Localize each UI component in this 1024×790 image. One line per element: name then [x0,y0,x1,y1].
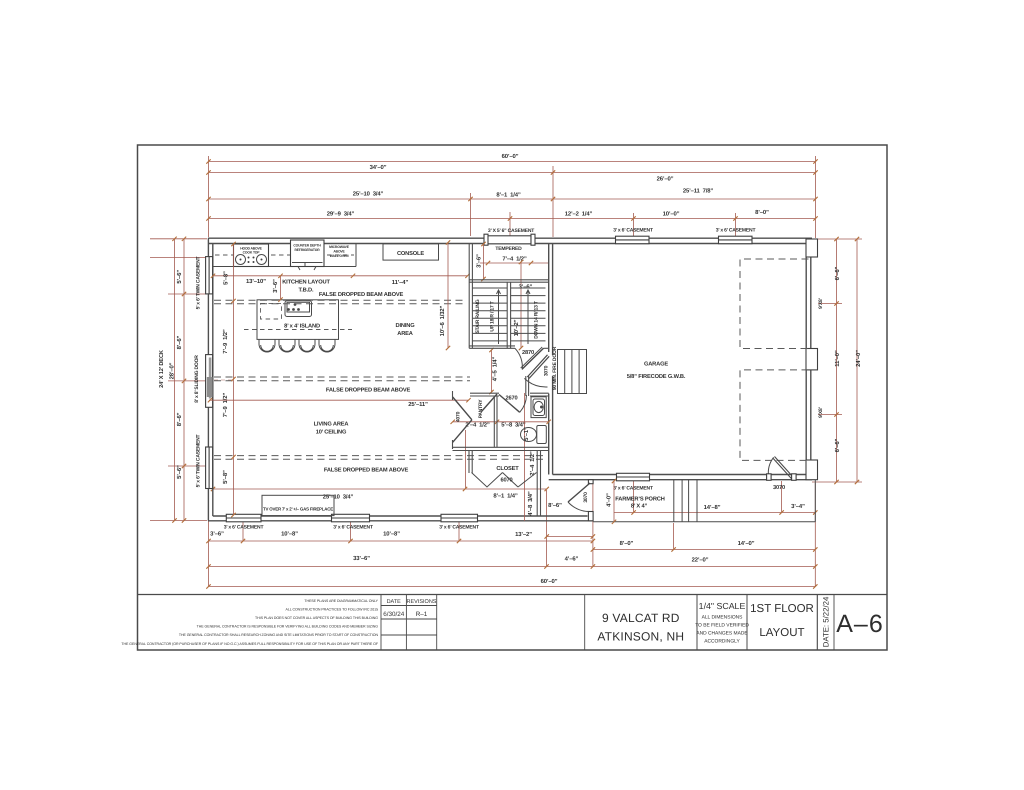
svg-text:24’–0”: 24’–0” [855,350,862,367]
svg-text:3’–4”: 3’–4” [791,503,805,510]
svg-text:REFRIGERATOR: REFRIGERATOR [294,248,320,252]
svg-text:CONSOLE: CONSOLE [397,251,424,257]
svg-text:TO BE FIELD VERIFIED: TO BE FIELD VERIFIED [695,623,749,629]
svg-text:3’–6”: 3’–6” [272,279,279,293]
svg-text:14’–0”: 14’–0” [738,540,755,547]
svg-text:25’–11 7/8”: 25’–11 7/8” [683,188,714,195]
svg-text:10’–6 1/32”: 10’–6 1/32” [439,305,446,336]
svg-text:4070: 4070 [456,411,462,422]
svg-text:8’ x 4’ ISLAND: 8’ x 4’ ISLAND [284,324,320,330]
svg-text:THESE PLANS ARE DIAGRAMMATICAL: THESE PLANS ARE DIAGRAMMATICAL ONLY [304,599,378,603]
svg-text:25’–11”: 25’–11” [408,401,428,408]
svg-text:R–1: R–1 [416,611,428,618]
svg-text:4’–0”: 4’–0” [606,493,613,507]
svg-text:GARAGE: GARAGE [644,362,668,368]
svg-text:6’–6”: 6’–6” [834,266,841,280]
svg-text:8’–1 1/4”: 8’–1 1/4” [496,192,521,199]
svg-text:3’ x 6’ CASEMENT: 3’ x 6’ CASEMENT [613,486,653,492]
svg-text:25’–10 3/4”: 25’–10 3/4” [353,191,384,198]
svg-text:3’ X 5’ 6” CASEMENT: 3’ X 5’ 6” CASEMENT [488,228,534,234]
svg-text:34’–0”: 34’–0” [370,164,387,171]
svg-text:5’–6”: 5’–6” [176,465,183,479]
svg-text:4’–6”: 4’–6” [565,556,579,563]
svg-text:ALL DIMENSIONS: ALL DIMENSIONS [702,615,744,621]
svg-text:9’X8’: 9’X8’ [818,406,824,417]
svg-text:5’ x 6’ TWIN CASEMENT: 5’ x 6’ TWIN CASEMENT [196,434,202,487]
svg-text:10’–8”: 10’–8” [281,531,298,538]
svg-text:11’–0”: 11’–0” [834,350,841,367]
svg-text:DOWN 14 R/ 13 T: DOWN 14 R/ 13 T [534,301,540,339]
svg-text:4’–5 1/4”: 4’–5 1/4” [492,357,499,382]
svg-text:DATE: 5/22/24: DATE: 5/22/24 [822,596,831,647]
svg-text:6070: 6070 [500,478,512,484]
svg-text:3’ x 6’ CASEMENT: 3’ x 6’ CASEMENT [716,228,756,234]
svg-text:8’–0”: 8’–0” [620,540,634,547]
svg-text:THE GENERAL CONTRACTOR SHALL R: THE GENERAL CONTRACTOR SHALL RESEARCH ZO… [179,633,379,637]
svg-text:CLOSET: CLOSET [496,466,519,472]
svg-text:7’–4 1/2”: 7’–4 1/2” [502,256,527,263]
svg-text:3’–6”: 3’–6” [476,254,483,268]
svg-text:25’–10 3/4”: 25’–10 3/4” [323,494,354,501]
svg-text:AREA: AREA [397,331,413,337]
svg-text:2’–4 1/2”: 2’–4 1/2” [529,451,536,476]
svg-text:10’–8”: 10’–8” [383,531,400,538]
svg-text:UP 18 R / 17 T: UP 18 R / 17 T [490,301,496,331]
svg-text:8’–0”: 8’–0” [755,209,769,216]
svg-text:FALSE DROPPED BEAM ABOVE: FALSE DROPPED BEAM ABOVE [319,292,404,298]
svg-text:13’–2”: 13’–2” [515,531,532,538]
svg-text:AND CHANGES MADE: AND CHANGES MADE [696,631,748,637]
svg-text:2870: 2870 [522,350,534,356]
svg-text:12’–2 1/4”: 12’–2 1/4” [565,211,593,218]
svg-text:8’ X 4”: 8’ X 4” [631,504,648,510]
svg-text:4’–8 3/4”: 4’–8 3/4” [527,491,534,516]
svg-text:6/30/24: 6/30/24 [383,611,405,618]
svg-text:3’ x 6’ CASEMENT: 3’ x 6’ CASEMENT [613,228,653,234]
svg-text:PANTRY: PANTRY [478,399,484,419]
svg-text:14’–8”: 14’–8” [704,504,721,511]
svg-text:5/8” FIRECODE G.W.B.: 5/8” FIRECODE G.W.B. [627,373,686,380]
svg-text:3’ x 6’ CASEMENT: 3’ x 6’ CASEMENT [333,525,373,531]
svg-text:13’–10”: 13’–10” [246,278,266,285]
svg-text:KITCHEN LAYOUT: KITCHEN LAYOUT [282,280,330,286]
svg-text:22’–0”: 22’–0” [692,557,709,564]
svg-text:33’–6”: 33’–6” [353,555,370,562]
svg-text:ABOVE: ABOVE [333,250,345,254]
svg-text:ALL CONSTRUCTION PRACTICES TO: ALL CONSTRUCTION PRACTICES TO FOLLOW IRC… [286,608,379,612]
svg-text:DINING: DINING [395,323,415,329]
svg-text:28’–0”: 28’–0” [169,362,176,379]
svg-text:10’–0”: 10’–0” [663,211,680,218]
svg-text:THIS PLAN DOES NOT COVER ALL A: THIS PLAN DOES NOT COVER ALL ASPECTS OF … [255,616,378,620]
svg-text:11’–4”: 11’–4” [392,279,409,286]
svg-text:REVISIONS: REVISIONS [407,599,437,605]
svg-text:ATKINSON, NH: ATKINSON, NH [597,630,684,644]
svg-text:5’–8 3/4”: 5’–8 3/4” [501,421,526,428]
svg-text:60’–0”: 60’–0” [502,153,519,160]
svg-text:3’–6”: 3’–6” [210,531,224,538]
svg-text:FALSE DROPPED BEAM ABOVE: FALSE DROPPED BEAM ABOVE [326,388,411,394]
svg-text:TEMPERED: TEMPERED [495,246,522,252]
svg-text:3’–6”: 3’–6” [519,284,533,291]
svg-text:60’–0”: 60’–0” [541,578,558,585]
svg-text:8’–6”: 8’–6” [176,412,183,426]
svg-text:3070: 3070 [773,485,785,491]
svg-text:7’–9 1/2”: 7’–9 1/2” [222,329,229,354]
svg-text:THE GENERAL CONTRACTOR (OR PUR: THE GENERAL CONTRACTOR (OR PURCHASER OF … [121,642,378,646]
svg-text:FALSE DROPPED BEAM ABOVE: FALSE DROPPED BEAM ABOVE [324,468,409,474]
svg-text:THE GENERAL CONTRACTOR IS RESP: THE GENERAL CONTRACTOR IS RESPONSIBLE FO… [197,625,379,629]
svg-text:3070: 3070 [544,365,550,376]
svg-text:8’ x 8’ SLIDING DOOR: 8’ x 8’ SLIDING DOOR [194,355,200,403]
svg-text:9’X8’: 9’X8’ [818,297,824,308]
svg-text:1/4" SCALE: 1/4" SCALE [699,601,746,611]
svg-text:26’–0”: 26’–0” [657,176,674,183]
svg-text:1ST FLOOR: 1ST FLOOR [750,603,814,615]
svg-text:WALL OVEN: WALL OVEN [330,254,349,258]
svg-text:2670: 2670 [505,396,517,402]
svg-text:8’–1 1/4”: 8’–1 1/4” [493,493,518,500]
svg-text:COUNTER DEPTH: COUNTER DEPTH [293,244,321,248]
svg-text:8’–6”: 8’–6” [548,502,562,509]
svg-text:3’ x 6’ CASEMENT: 3’ x 6’ CASEMENT [439,525,479,531]
svg-text:5’–6”: 5’–6” [176,270,183,284]
svg-text:6’–6”: 6’–6” [834,438,841,452]
svg-text:5’–8”: 5’–8” [222,470,229,484]
svg-text:TV OVER 7’ x 2’ +/– GAS FIREPL: TV OVER 7’ x 2’ +/– GAS FIREPLACE [263,507,333,512]
svg-text:ACCORDINGLY: ACCORDINGLY [704,639,740,645]
svg-text:8’–6”: 8’–6” [176,335,183,349]
svg-text:24’ X 12’ DECK: 24’ X 12’ DECK [159,349,165,388]
svg-text:7’–9 1/2”: 7’–9 1/2” [222,393,229,418]
svg-text:LIVING AREA: LIVING AREA [314,422,349,428]
svg-text:3070: 3070 [583,492,589,503]
svg-text:3’ x 6’ CASEMENT: 3’ x 6’ CASEMENT [224,525,264,531]
svg-text:A–6: A–6 [836,610,883,638]
svg-text:T.B.D.: T.B.D. [299,288,314,294]
svg-text:5’ x 6’ TWIN CASEMENT: 5’ x 6’ TWIN CASEMENT [196,256,202,309]
svg-text:29’–9 3/4”: 29’–9 3/4” [327,211,355,218]
svg-text:5’–8”: 5’–8” [223,271,230,285]
svg-text:LAYOUT: LAYOUT [759,627,804,639]
svg-text:DATE: DATE [387,599,402,605]
svg-text:FARMER’S PORCH: FARMER’S PORCH [615,497,664,503]
svg-text:COOK TOP: COOK TOP [243,251,261,255]
svg-text:10’ CEILING: 10’ CEILING [316,430,347,436]
svg-text:STAIR RAILING: STAIR RAILING [475,299,481,333]
svg-text:MICROWAVE: MICROWAVE [329,245,350,249]
svg-text:9 VALCAT RD: 9 VALCAT RD [602,611,680,625]
